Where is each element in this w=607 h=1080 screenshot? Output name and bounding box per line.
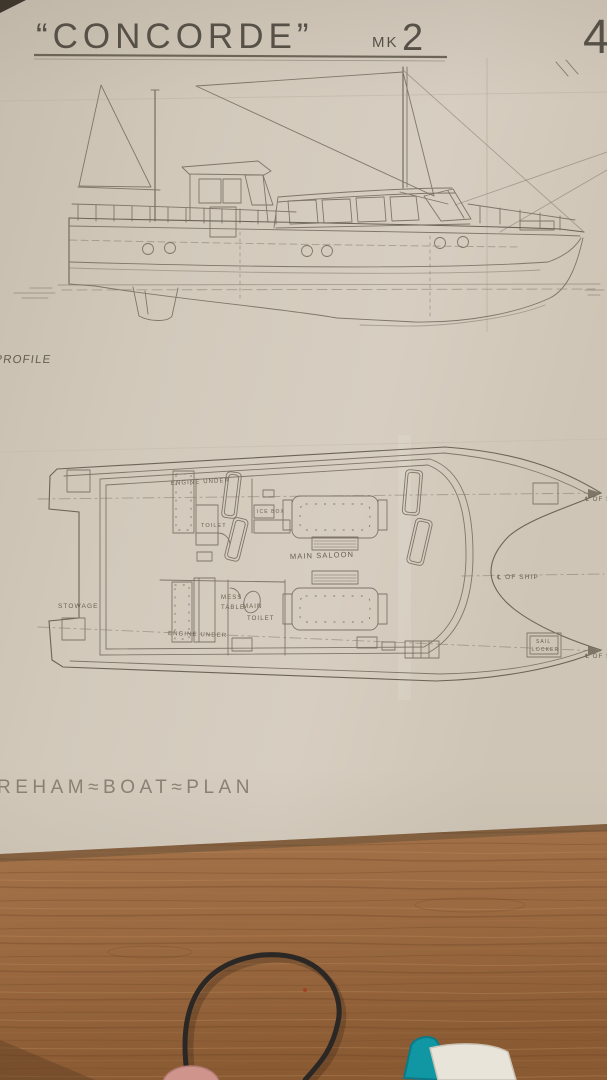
white-object	[430, 1044, 516, 1080]
profile-view-label: PROFILE	[0, 354, 52, 366]
sail-locker-label-1: SAIL	[536, 639, 551, 645]
mess-table-label-1: MESS	[221, 595, 242, 601]
stowage-label: STOWAGE	[58, 603, 99, 610]
main-toilet-label-2: TOILET	[247, 616, 275, 622]
toilet-label: TOILET	[201, 523, 227, 529]
scene: “CONCORDE” MK 2 4	[0, 0, 607, 1080]
centerline-label-mid: ℄ OF SHIP	[496, 574, 539, 581]
centerline-label-top: ℄ OF SH	[584, 497, 607, 503]
title-mark: MK	[372, 34, 399, 51]
ice-box-label: ICE BOX	[257, 509, 285, 515]
wooden-table	[0, 824, 607, 1080]
boat-plan-caption: REHAM≈BOAT≈PLAN	[0, 777, 254, 798]
centerline-label-bottom: ℄ OF S	[584, 654, 607, 660]
title-mark-number: 2	[402, 17, 423, 59]
page-number: 4	[583, 11, 607, 64]
paper-sheet	[0, 0, 607, 854]
red-speck	[303, 988, 307, 992]
mess-table-label-2: TABLE	[221, 605, 245, 611]
vertical-fold-crease	[398, 435, 411, 700]
photo-of-boat-plan: “CONCORDE” MK 2 4	[0, 0, 607, 1080]
main-toilet-label-1: MAIN	[243, 604, 262, 610]
sail-locker-label-2: LOCKER	[532, 647, 559, 653]
boat-title: “CONCORDE”	[36, 17, 313, 56]
